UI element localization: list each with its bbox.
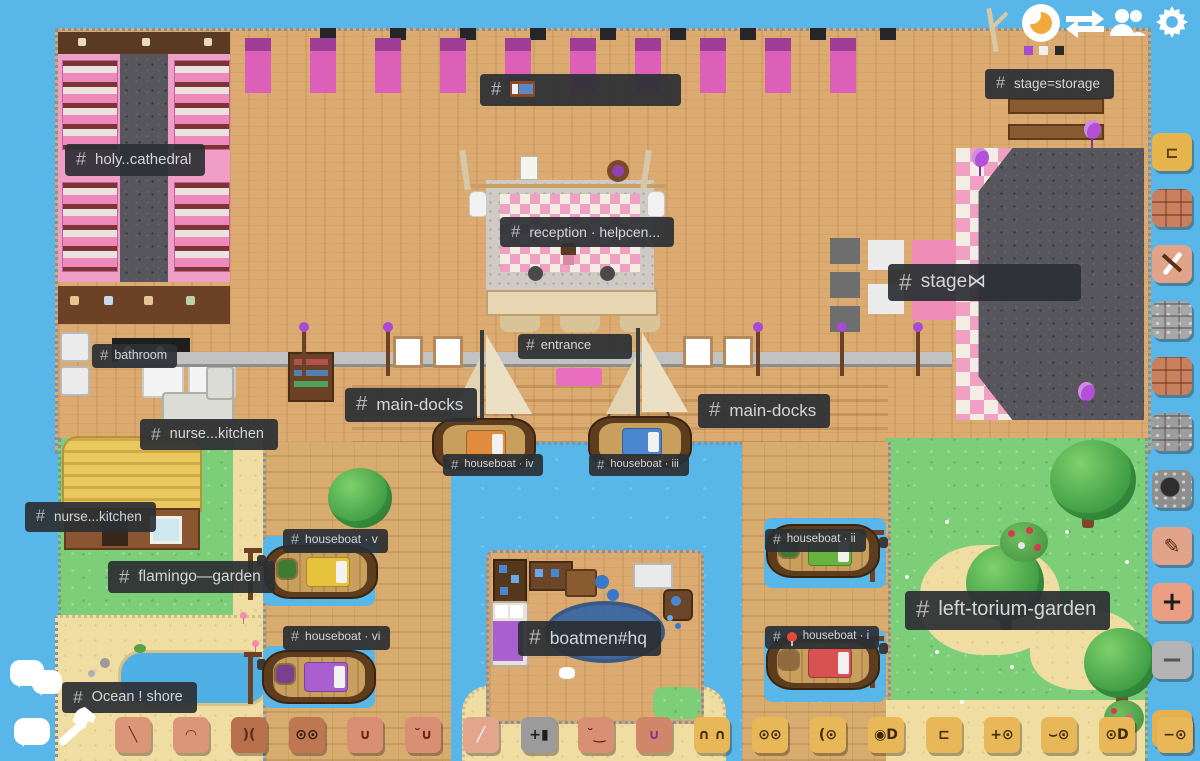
area-label-houseboat-v: # houseboat · v	[283, 529, 388, 553]
pickaxe-icon	[1159, 251, 1185, 277]
tile-glyph: ◉D	[874, 727, 898, 743]
cathedral-pews	[174, 182, 230, 272]
crescent-moon-icon	[1022, 4, 1060, 42]
area-label-main-docks-left: # main-docks	[345, 388, 477, 422]
area-label-text: bathroom	[114, 348, 167, 362]
bookshelf	[288, 352, 334, 402]
tile-sleepy-face[interactable]: −⊙	[1157, 717, 1193, 753]
tile-glyph: ⌣⊙	[1049, 727, 1070, 743]
channel-hash-icon: #	[526, 337, 535, 355]
right-dock	[742, 442, 891, 761]
channel-hash-icon: #	[773, 532, 781, 548]
lamp-post	[840, 330, 844, 376]
rock	[100, 658, 110, 668]
tiny-item	[1039, 46, 1048, 55]
area-label-text: nurse...kitchen	[170, 426, 264, 443]
tile-bark[interactable]: )(	[231, 717, 267, 753]
area-label-text: Ocean ! shore	[92, 689, 183, 706]
channel-hash-icon: #	[151, 424, 161, 444]
channel-hash-icon: #	[76, 149, 86, 170]
chat-threads-button[interactable]	[10, 660, 64, 704]
hq-table	[565, 569, 597, 597]
area-label-holy-cathedral: # holy..cathedral	[65, 144, 205, 176]
tile-leaf-stroke[interactable]: ╲	[115, 717, 151, 753]
hq-grass-patch	[653, 687, 701, 719]
tile-glyph: (⊙	[819, 727, 837, 743]
tile-glyph: ╱	[477, 727, 485, 743]
tile-glyph: ⊏	[938, 727, 950, 743]
tile-happy-face[interactable]: ⊙D	[1099, 717, 1135, 753]
area-label-houseboat-i: # houseboat · i	[765, 626, 879, 649]
reception-rail	[468, 184, 668, 188]
zoom-in-button[interactable]: +	[1152, 583, 1192, 621]
members-button[interactable]	[1108, 8, 1146, 39]
map-swap-button[interactable]	[1062, 8, 1108, 41]
purple-balloon	[972, 148, 989, 167]
channel-hash-icon: #	[291, 629, 299, 646]
area-label-houseboat-iii: # houseboat · iii	[589, 454, 689, 476]
tile-round-eyes-face[interactable]: ⊙⊙	[752, 717, 788, 753]
rose-bush	[1000, 522, 1048, 562]
statue	[648, 192, 664, 216]
houseboat-vi-boat	[262, 650, 376, 704]
tile-glyph: ∪	[648, 727, 659, 743]
tile-arc-face[interactable]: ◠	[173, 717, 209, 753]
area-label-text: stage⋈	[921, 271, 986, 293]
sail	[606, 356, 636, 414]
pickaxe-tile-button[interactable]	[1152, 245, 1192, 283]
tile-wink-face[interactable]: ˘∪	[405, 717, 441, 753]
storage-bench	[1008, 98, 1104, 114]
chat-button[interactable]	[14, 718, 52, 750]
area-label-nurse-kitchen-west: # nurse...kitchen	[25, 502, 156, 532]
tile-glyph: ◠	[186, 727, 197, 743]
area-label-text: boatmen#hq	[550, 628, 647, 648]
tile-owl-eyes-face[interactable]: ⊙⊙	[289, 717, 325, 753]
tile-smirk-face[interactable]: ˘‿	[578, 717, 614, 753]
tiny-item	[1024, 46, 1033, 55]
area-label-stage: # stage⋈	[888, 264, 1081, 301]
settings-button[interactable]	[1156, 6, 1188, 41]
kitchen-counter	[58, 286, 230, 324]
channel-hash-icon: #	[773, 629, 781, 645]
channel-hash-icon: #	[36, 507, 45, 526]
window	[393, 336, 423, 368]
notice-paper	[520, 156, 538, 180]
tile-wink-eye-face[interactable]: (⊙	[810, 717, 846, 753]
tile-glyph: ⊙⊙	[758, 727, 781, 743]
boat-crate	[278, 560, 296, 578]
tile-glyph: ˘∪	[414, 727, 432, 743]
lamp-post	[756, 330, 760, 376]
sink	[60, 366, 90, 396]
tile-glance-face[interactable]: +⊙	[984, 717, 1020, 753]
rock	[88, 670, 95, 677]
lamp-post	[916, 330, 920, 376]
area-label-bathroom: # bathroom	[92, 344, 177, 368]
people-icon	[1108, 8, 1146, 36]
plus-icon: +	[1161, 587, 1183, 617]
channel-hash-icon: #	[451, 457, 458, 472]
boat-bed	[304, 662, 348, 692]
zoom-out-button[interactable]: −	[1152, 641, 1192, 679]
channel-hash-icon: #	[996, 74, 1005, 93]
tile-glyph: ⊏	[1165, 143, 1178, 162]
tile-big-eyes-face[interactable]: ◉D	[868, 717, 904, 753]
couch-arm	[206, 366, 234, 400]
channel-hash-icon: #	[709, 399, 720, 422]
area-label-main-docks-right: # main-docks	[698, 394, 830, 428]
player-avatar-body	[563, 255, 574, 265]
tile-glyph: +▮	[529, 727, 548, 743]
tile-tongue-face[interactable]: ∪	[636, 717, 672, 753]
hq-pot	[595, 575, 609, 589]
channel-hash-icon: #	[356, 393, 367, 416]
boat-bed	[622, 428, 662, 456]
sail	[642, 332, 688, 412]
area-label-houseboat-iv: # houseboat · iv	[443, 454, 543, 476]
tree	[1050, 440, 1136, 520]
tile-glyph: ⊙⊙	[295, 727, 318, 743]
tile-glyph: ˘‿	[587, 727, 606, 743]
white-cat	[559, 667, 575, 679]
cathedral-pews	[62, 60, 118, 150]
lamp-post	[302, 330, 306, 376]
area-label-text: main-docks	[729, 401, 816, 421]
mast	[480, 330, 484, 426]
tree	[1084, 628, 1156, 698]
channel-hash-icon: #	[916, 596, 929, 624]
build-tool-button[interactable]	[52, 700, 102, 757]
bed-row-headboards	[245, 38, 895, 51]
active-tile-button[interactable]: ⊏	[1152, 133, 1192, 171]
gear-icon	[1156, 6, 1188, 38]
area-label-text: nurse...kitchen	[54, 509, 142, 525]
reception-stool	[500, 314, 540, 332]
area-label-text: main-docks	[376, 395, 463, 415]
area-label-text: houseboat · i	[803, 630, 870, 643]
tiny-item	[1055, 46, 1064, 55]
stone-tile-button[interactable]	[1152, 301, 1192, 339]
boat-crate	[780, 651, 798, 669]
transfer-arrows-icon	[1062, 8, 1108, 38]
round-pushpin-emoji-icon	[787, 632, 797, 642]
sign-tile-button[interactable]: ✎	[1152, 527, 1192, 565]
flamingo	[252, 640, 259, 647]
channel-hash-icon: #	[491, 79, 501, 100]
channel-hash-icon: #	[597, 457, 604, 472]
channel-hash-icon: #	[529, 626, 541, 650]
channel-hash-icon: #	[291, 532, 299, 549]
houseboat-v-boat	[264, 545, 378, 599]
lamp-post	[386, 330, 390, 376]
area-label-text: stage=storage	[1014, 76, 1100, 92]
area-label-text: houseboat · ii	[787, 533, 856, 546]
channel-hash-icon: #	[119, 566, 129, 587]
channel-hash-icon: #	[899, 269, 912, 295]
flamingo	[240, 612, 247, 619]
gray-mat	[830, 272, 860, 298]
bed-emoji-icon	[510, 81, 535, 97]
window	[723, 336, 753, 368]
tile-bandage-face[interactable]: ╱	[463, 717, 499, 753]
area-label-text: houseboat · v	[305, 533, 378, 547]
area-label-text: holy..cathedral	[95, 151, 191, 168]
brick-tile-button-2[interactable]	[1152, 357, 1192, 395]
night-mode-button[interactable]	[1022, 4, 1060, 42]
mooring-post	[248, 652, 253, 704]
app-window: # holy..cathedral # # stage=storage # re…	[0, 0, 1200, 761]
reception-stool	[560, 314, 600, 332]
purple-balloon	[1078, 382, 1095, 401]
boat-bed	[306, 557, 350, 587]
tile-teary-face[interactable]: ⌣⊙	[1041, 717, 1077, 753]
cathedral-pews	[174, 60, 230, 150]
tile-glyph: +⊙	[990, 727, 1013, 743]
boat-bed	[808, 648, 852, 678]
reception-counter	[486, 290, 658, 316]
rubble-tile-button[interactable]	[1152, 470, 1192, 508]
tile-glyph: ⊙D	[1105, 727, 1128, 743]
cathedral-pews	[62, 182, 118, 272]
hq-pot	[607, 589, 619, 601]
area-label-bedroom: #	[480, 74, 681, 106]
area-label-text: flamingo—garden	[138, 568, 260, 586]
goblet	[600, 266, 615, 281]
statue	[470, 192, 486, 216]
area-label-nurse-kitchen: # nurse...kitchen	[140, 419, 278, 450]
area-label-boatmen-hq: # boatmen#hq	[518, 621, 661, 656]
reception-stool	[620, 314, 660, 332]
area-label-text: entrance	[541, 338, 592, 353]
brick-tile-button[interactable]	[1152, 189, 1192, 227]
tile-grin-face[interactable]: ∪	[347, 717, 383, 753]
pencil-icon: ✎	[1164, 534, 1181, 558]
boat-crate	[276, 665, 294, 683]
channel-hash-icon: #	[100, 347, 108, 364]
tree	[328, 468, 392, 528]
minus-icon: −	[1161, 645, 1183, 675]
pink-mat	[556, 368, 602, 386]
area-label-text: houseboat · iii	[610, 458, 679, 471]
tile-glyph: ╲	[129, 727, 137, 743]
tile-glyph: ∪	[359, 727, 370, 743]
wall-mirror	[607, 160, 629, 182]
tile-blank-face[interactable]: ⊏	[926, 717, 962, 753]
tile-calm-face[interactable]: ∩ ∩	[694, 717, 730, 753]
area-label-entrance: # entrance	[518, 334, 632, 359]
area-label-stage-storage: # stage=storage	[985, 69, 1114, 99]
hq-sink	[633, 563, 673, 589]
tile-glyph: ∩ ∩	[698, 727, 726, 743]
hq-shelf	[493, 559, 527, 607]
area-label-houseboat-vi: # houseboat · vi	[283, 626, 390, 650]
area-label-reception: # reception · helpcen...	[500, 217, 674, 247]
channel-hash-icon: #	[511, 222, 520, 241]
area-label-text: left-torium-garden	[938, 598, 1096, 621]
mast	[636, 328, 640, 424]
tile-anvil-counter[interactable]: +▮	[521, 717, 557, 753]
gray-mat	[830, 238, 860, 264]
hammer-icon	[52, 700, 102, 752]
speech-bubble-icon	[14, 718, 50, 745]
area-label-text: houseboat · iv	[464, 458, 533, 471]
purple-balloon	[1084, 120, 1101, 139]
tile-glyph: )(	[243, 727, 256, 743]
area-label-left-torium-garden: # left-torium-garden	[905, 591, 1110, 630]
stone-tile-button-2[interactable]	[1152, 413, 1192, 451]
area-label-text: reception · helpcen...	[529, 224, 660, 240]
tile-glyph: −⊙	[1163, 727, 1186, 743]
washer	[60, 332, 90, 362]
turtle	[134, 644, 146, 653]
area-label-flamingo-garden: # flamingo—garden	[108, 561, 275, 593]
goblet	[528, 266, 543, 281]
area-label-houseboat-ii: # houseboat · ii	[765, 529, 866, 552]
area-label-text: houseboat · vi	[305, 630, 380, 644]
